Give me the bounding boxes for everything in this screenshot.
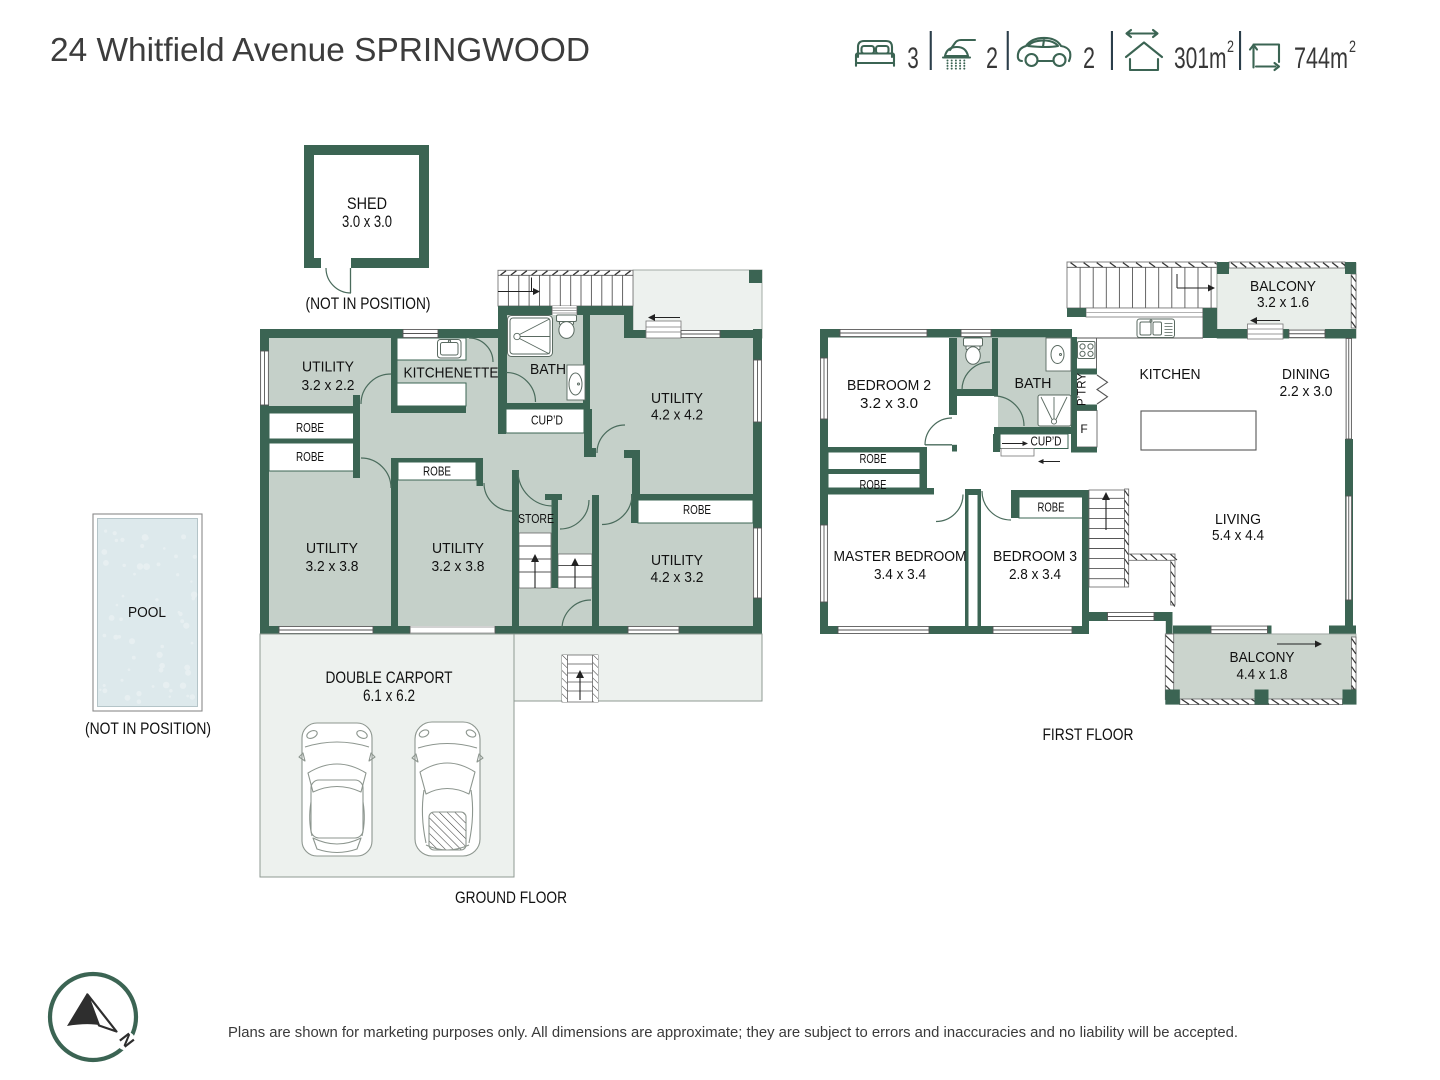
svg-text:2: 2 xyxy=(1227,37,1234,56)
svg-text:4.2 x 4.2: 4.2 x 4.2 xyxy=(651,407,703,424)
svg-text:UTILITY: UTILITY xyxy=(651,390,703,407)
svg-text:BALCONY: BALCONY xyxy=(1250,278,1316,295)
svg-text:3.2 x 1.6: 3.2 x 1.6 xyxy=(1257,294,1309,311)
svg-text:3: 3 xyxy=(907,42,919,75)
svg-text:BATH: BATH xyxy=(530,361,566,378)
svg-text:Plans are shown for marketing: Plans are shown for marketing purposes o… xyxy=(228,1024,1238,1041)
svg-text:24 Whitfield Avenue SPRINGWOOD: 24 Whitfield Avenue SPRINGWOOD xyxy=(50,32,590,69)
svg-text:UTILITY: UTILITY xyxy=(651,552,703,569)
svg-text:2: 2 xyxy=(1083,42,1095,75)
svg-text:4.4 x 1.8: 4.4 x 1.8 xyxy=(1237,666,1288,683)
svg-text:2.2 x 3.0: 2.2 x 3.0 xyxy=(1280,383,1333,400)
svg-text:301m: 301m xyxy=(1174,42,1227,75)
svg-text:POOL: POOL xyxy=(128,604,166,621)
svg-text:3.2 x 3.0: 3.2 x 3.0 xyxy=(860,395,918,412)
svg-text:3.2 x 3.8: 3.2 x 3.8 xyxy=(432,558,485,575)
svg-text:DOUBLE CARPORT: DOUBLE CARPORT xyxy=(326,668,453,687)
svg-text:2: 2 xyxy=(1349,37,1356,56)
svg-text:ROBE: ROBE xyxy=(1038,501,1065,515)
svg-text:DINING: DINING xyxy=(1282,366,1330,383)
svg-text:CUP’D: CUP’D xyxy=(531,414,563,428)
svg-text:ROBE: ROBE xyxy=(423,465,451,479)
svg-text:3.0 x 3.0: 3.0 x 3.0 xyxy=(342,212,392,231)
svg-text:UTILITY: UTILITY xyxy=(302,359,354,376)
svg-text:3.4 x 3.4: 3.4 x 3.4 xyxy=(874,566,926,583)
svg-text:ROBE: ROBE xyxy=(860,478,887,492)
svg-text:MASTER BEDROOM: MASTER BEDROOM xyxy=(834,548,967,565)
svg-text:GROUND FLOOR: GROUND FLOOR xyxy=(455,888,567,907)
svg-text:UTILITY: UTILITY xyxy=(306,540,358,557)
svg-text:BALCONY: BALCONY xyxy=(1230,649,1295,666)
svg-text:SHED: SHED xyxy=(347,194,387,213)
svg-text:BEDROOM 3: BEDROOM 3 xyxy=(993,548,1077,565)
svg-text:KITCHEN: KITCHEN xyxy=(1140,366,1201,383)
svg-text:P’TRY: P’TRY xyxy=(1077,373,1089,406)
svg-text:FIRST FLOOR: FIRST FLOOR xyxy=(1043,725,1134,744)
svg-text:CUP’D: CUP’D xyxy=(1031,435,1062,449)
svg-text:BEDROOM 2: BEDROOM 2 xyxy=(847,377,931,394)
svg-text:BATH: BATH xyxy=(1015,375,1052,392)
svg-text:3.2 x 2.2: 3.2 x 2.2 xyxy=(302,377,355,394)
svg-text:ROBE: ROBE xyxy=(296,450,324,464)
svg-text:2.8 x 3.4: 2.8 x 3.4 xyxy=(1009,566,1061,583)
svg-text:ROBE: ROBE xyxy=(296,421,324,435)
svg-text:STORE: STORE xyxy=(518,512,554,526)
svg-text:ROBE: ROBE xyxy=(860,452,887,466)
svg-text:(NOT IN POSITION): (NOT IN POSITION) xyxy=(306,294,431,313)
svg-text:2: 2 xyxy=(986,42,998,75)
svg-text:LIVING: LIVING xyxy=(1215,511,1261,528)
svg-text:KITCHENETTE: KITCHENETTE xyxy=(404,365,499,382)
svg-text:6.1 x 6.2: 6.1 x 6.2 xyxy=(363,686,415,705)
svg-text:ROBE: ROBE xyxy=(683,503,711,517)
svg-text:F: F xyxy=(1080,422,1087,436)
svg-text:(NOT IN POSITION): (NOT IN POSITION) xyxy=(85,719,211,738)
svg-text:744m: 744m xyxy=(1294,42,1348,75)
svg-text:UTILITY: UTILITY xyxy=(432,540,484,557)
svg-text:5.4 x 4.4: 5.4 x 4.4 xyxy=(1212,527,1264,544)
svg-text:4.2 x 3.2: 4.2 x 3.2 xyxy=(651,569,704,586)
svg-text:3.2 x 3.8: 3.2 x 3.8 xyxy=(306,558,359,575)
